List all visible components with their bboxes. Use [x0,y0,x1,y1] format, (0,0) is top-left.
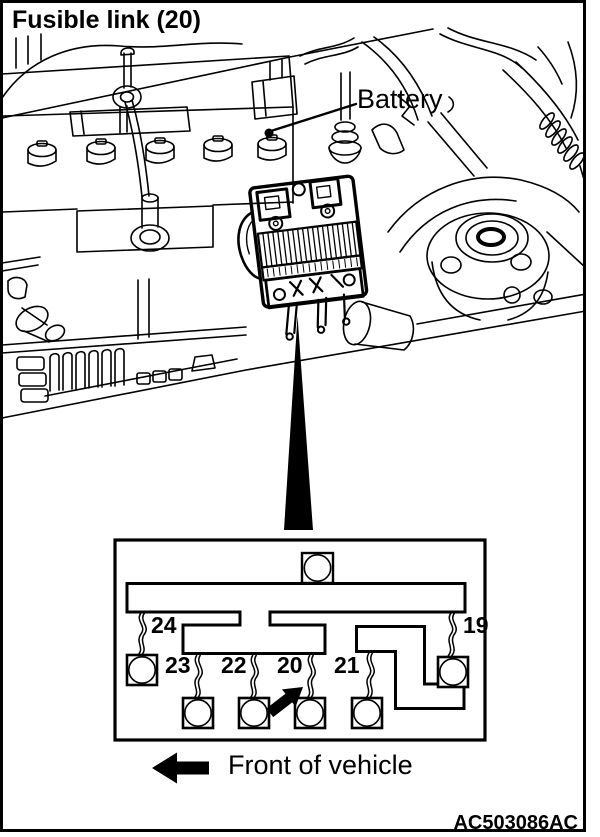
slotted-panel [2,257,246,402]
top-fuse-square [302,553,333,583]
fuse-20-slot [295,698,325,728]
fuse-23-slot [183,698,213,728]
fuse-label-20: 20 [277,654,303,677]
fuse-label-23: 23 [165,654,191,677]
fuse-21-slot [352,698,382,728]
front-of-vehicle-arrow-icon [152,753,209,784]
figure-code: AC503086AC [453,813,578,833]
front-of-vehicle-label: Front of vehicle [228,752,413,779]
fuse-label-19: 19 [463,614,489,637]
battery-illustration [3,48,293,252]
fusible-link-component [232,176,371,345]
battery-callout-label: Battery [357,86,443,113]
fuse-24-slot [127,655,157,685]
fuse-label-24: 24 [151,614,177,637]
pointer-wedge [284,316,313,530]
manual-page: Fusible link (20) Battery 24 19 23 22 20… [0,0,600,837]
illustration-canvas [0,0,586,832]
fuse-label-22: 22 [221,654,247,677]
fuse-label-21: 21 [334,654,360,677]
fuse-19-slot [438,657,468,687]
page-title: Fusible link (20) [12,8,201,33]
fuse-22-slot [239,698,269,728]
bus-bar-main [127,584,465,654]
engine-bay-illustration [2,28,586,418]
fuse-detail-box [115,540,485,740]
